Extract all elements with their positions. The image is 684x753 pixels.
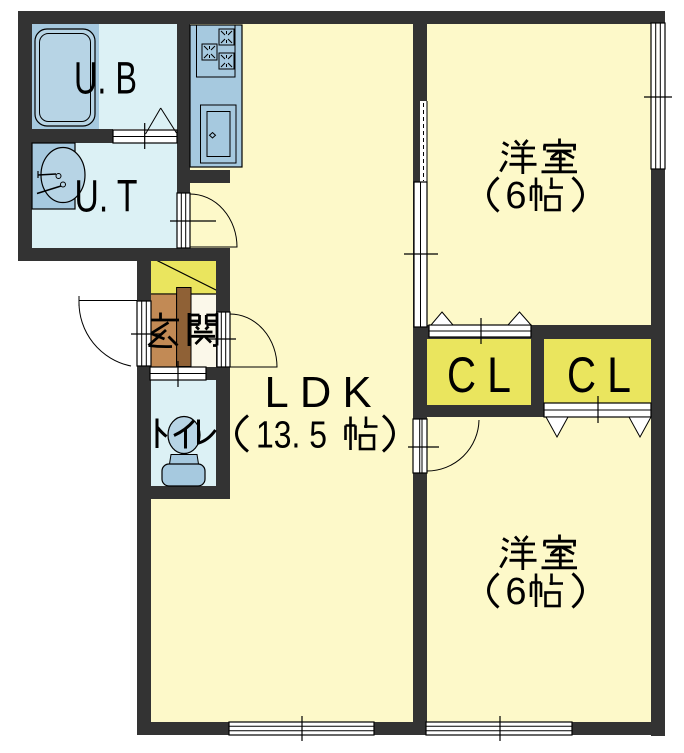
svg-text:LDK: LDK <box>265 369 372 417</box>
svg-text:L: L <box>487 347 511 403</box>
svg-text:U. B: U. B <box>74 53 137 104</box>
svg-text:13. 5: 13. 5 <box>256 415 327 457</box>
svg-text:C: C <box>567 347 596 403</box>
svg-text:U. T: U. T <box>75 171 138 222</box>
svg-text:6: 6 <box>505 571 526 613</box>
svg-text:C: C <box>447 347 476 403</box>
svg-text:L: L <box>607 347 631 403</box>
svg-text:6: 6 <box>505 175 526 217</box>
